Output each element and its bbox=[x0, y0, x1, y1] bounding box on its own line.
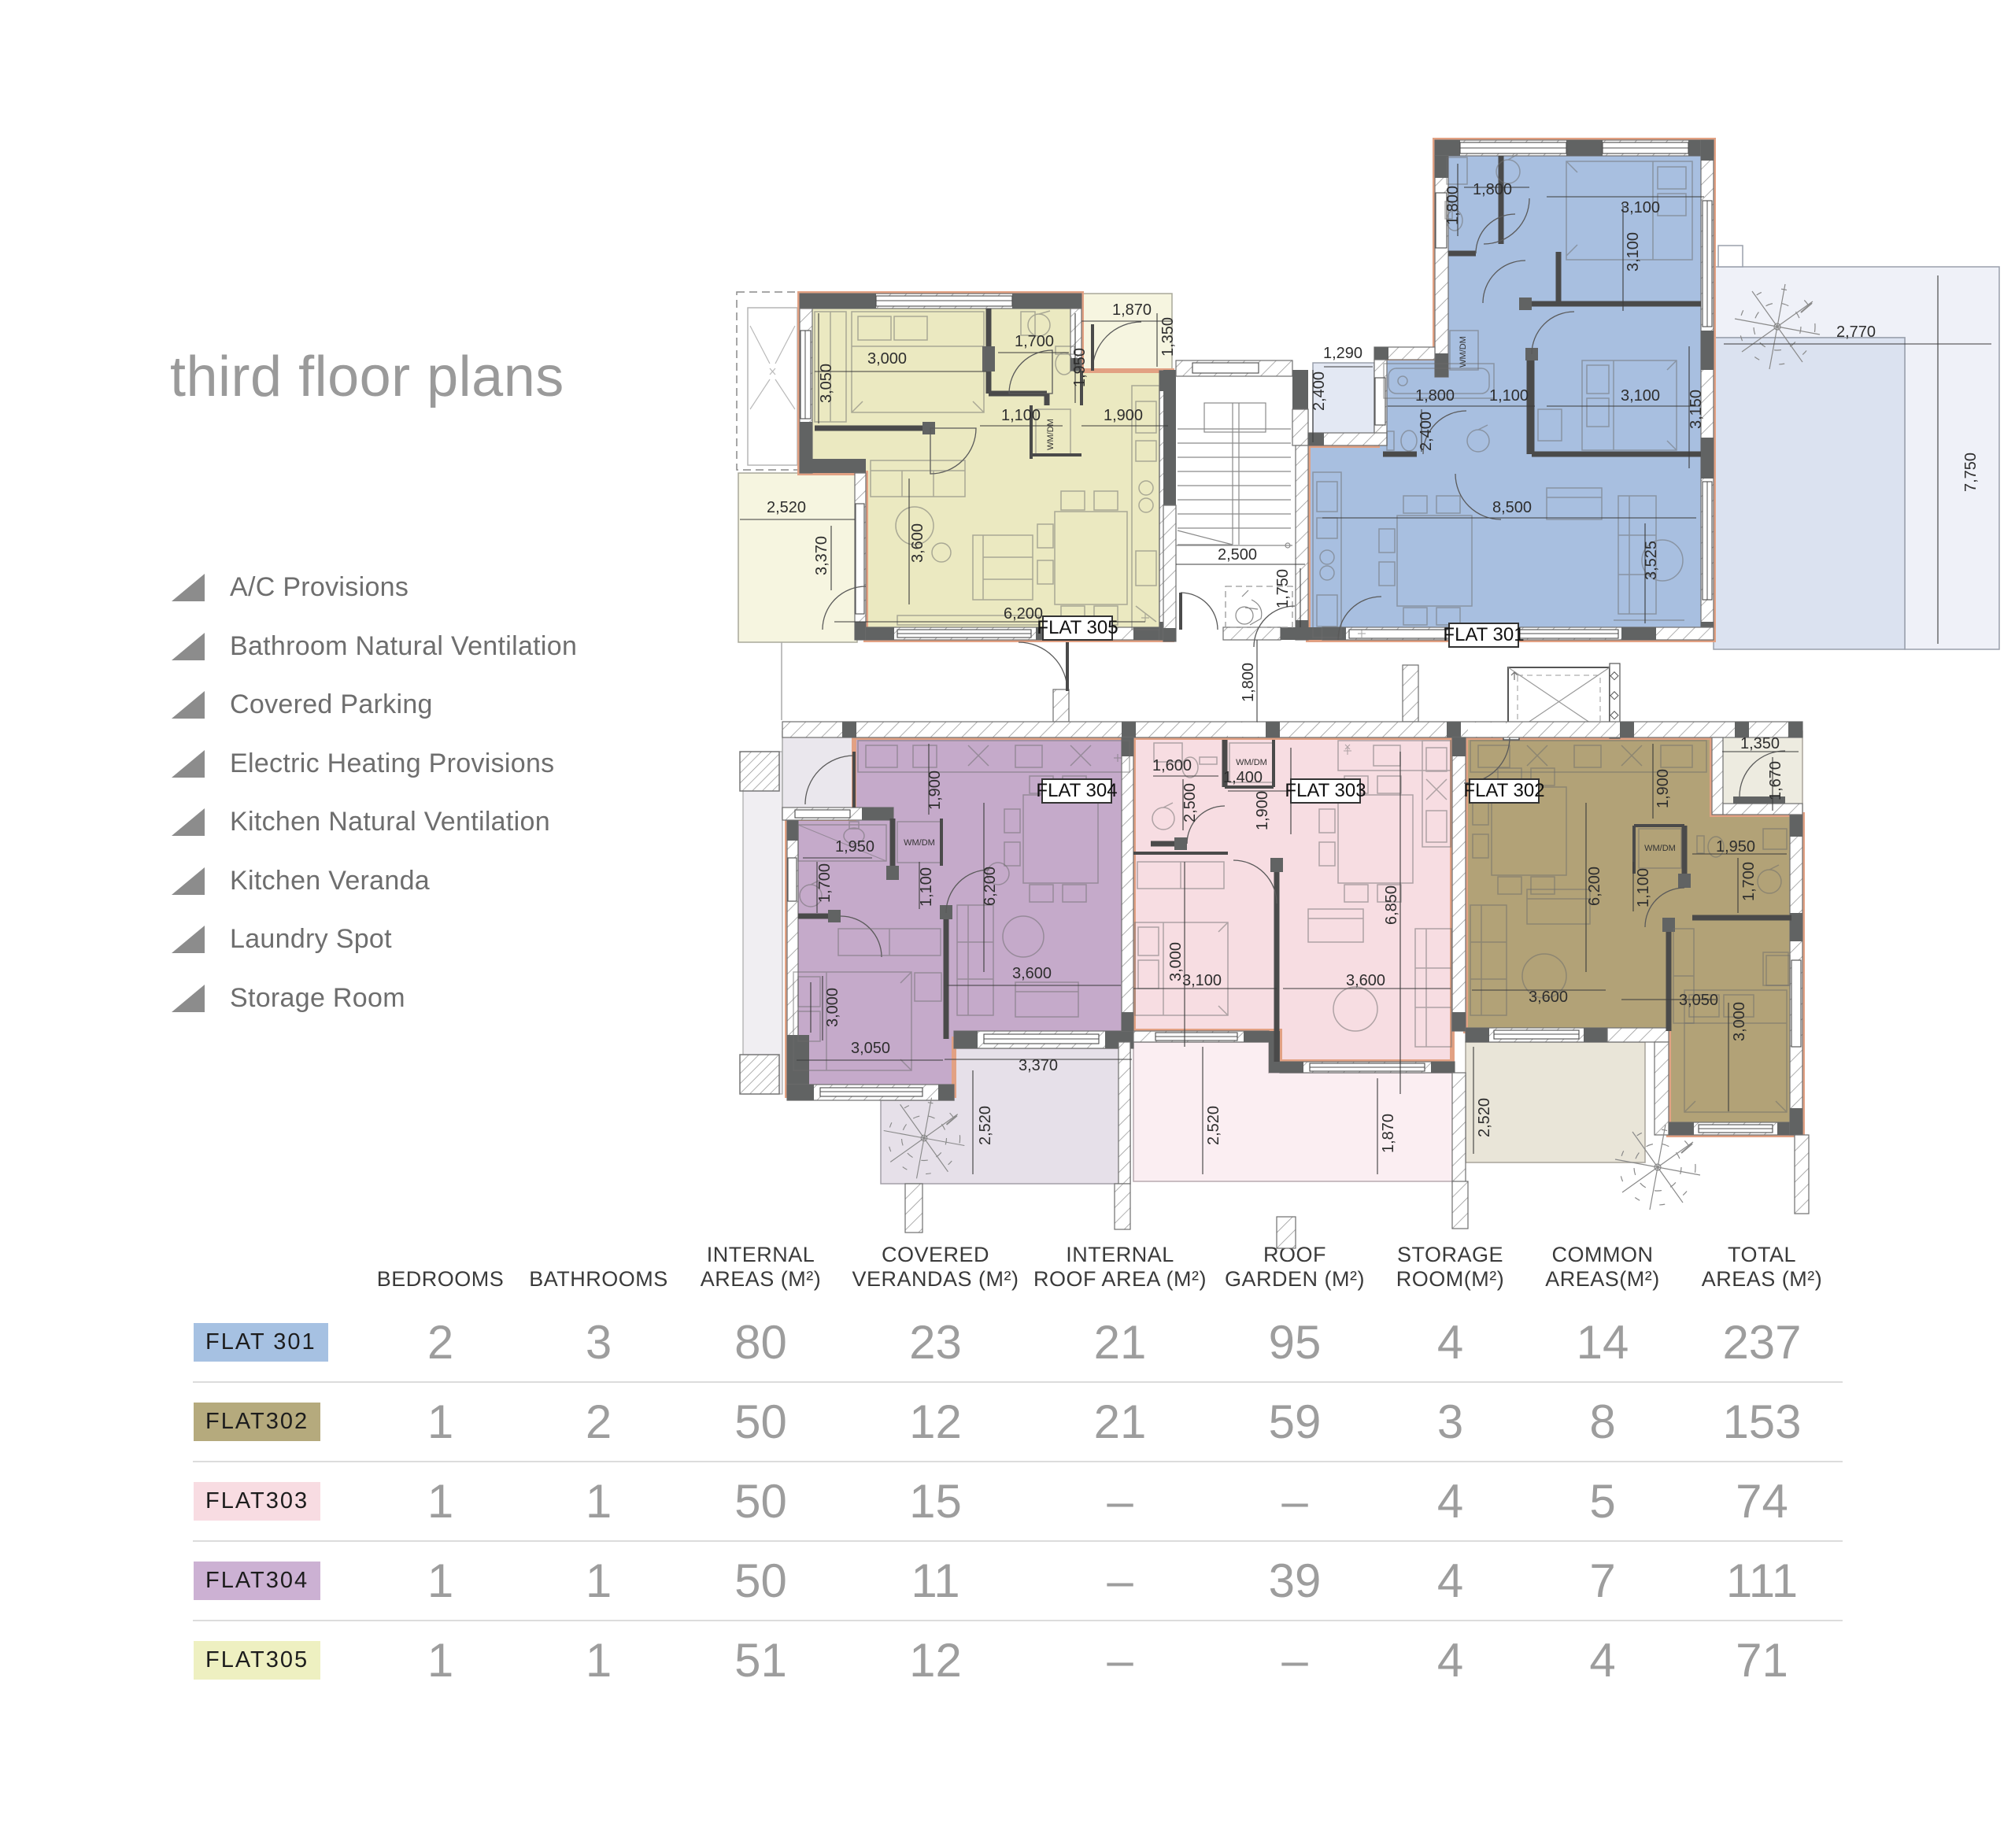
svg-text:1,900: 1,900 bbox=[926, 771, 944, 810]
svg-text:6,200: 6,200 bbox=[1586, 867, 1603, 906]
svg-text:1,900: 1,900 bbox=[1254, 791, 1271, 830]
svg-text:1,670: 1,670 bbox=[1767, 761, 1784, 800]
svg-text:WM/DM: WM/DM bbox=[904, 838, 935, 848]
svg-text:1,100: 1,100 bbox=[1489, 387, 1529, 405]
svg-text:1,870: 1,870 bbox=[1380, 1114, 1397, 1153]
svg-text:2,520: 2,520 bbox=[977, 1106, 994, 1145]
svg-text:3,000: 3,000 bbox=[1731, 1002, 1748, 1041]
svg-text:2,500: 2,500 bbox=[1181, 783, 1199, 822]
svg-text:FLAT 301: FLAT 301 bbox=[1443, 624, 1524, 645]
svg-text:3,100: 3,100 bbox=[1182, 972, 1222, 989]
svg-text:3,000: 3,000 bbox=[824, 988, 841, 1027]
svg-text:WM/DM: WM/DM bbox=[1644, 844, 1676, 853]
svg-text:1,100: 1,100 bbox=[1001, 407, 1041, 424]
svg-text:1,100: 1,100 bbox=[918, 867, 935, 907]
svg-text:6,200: 6,200 bbox=[982, 867, 999, 906]
svg-text:1,700: 1,700 bbox=[1015, 333, 1054, 350]
svg-text:1,290: 1,290 bbox=[1323, 345, 1362, 362]
svg-text:8,500: 8,500 bbox=[1492, 499, 1532, 516]
svg-text:3,525: 3,525 bbox=[1643, 541, 1660, 580]
svg-text:1,900: 1,900 bbox=[1104, 407, 1143, 424]
svg-text:3,600: 3,600 bbox=[1012, 965, 1052, 982]
svg-text:1,700: 1,700 bbox=[816, 863, 834, 903]
svg-text:1,900: 1,900 bbox=[1655, 769, 1672, 808]
svg-text:6,850: 6,850 bbox=[1383, 885, 1400, 925]
svg-text:WM/DM: WM/DM bbox=[1236, 758, 1267, 767]
svg-text:3,600: 3,600 bbox=[909, 523, 926, 563]
svg-text:3,100: 3,100 bbox=[1621, 199, 1660, 216]
svg-text:1,600: 1,600 bbox=[1152, 757, 1192, 774]
svg-text:FLAT 302: FLAT 302 bbox=[1463, 780, 1544, 801]
svg-text:1,400: 1,400 bbox=[1223, 769, 1263, 786]
svg-text:FLAT 305: FLAT 305 bbox=[1037, 617, 1118, 638]
svg-text:3,370: 3,370 bbox=[1019, 1057, 1058, 1074]
svg-text:2,400: 2,400 bbox=[1311, 371, 1328, 411]
svg-text:1,950: 1,950 bbox=[1716, 838, 1755, 856]
svg-text:1,700: 1,700 bbox=[1740, 862, 1758, 901]
svg-text:FLAT 303: FLAT 303 bbox=[1285, 780, 1366, 801]
svg-text:WM/DM: WM/DM bbox=[1046, 419, 1056, 450]
svg-text:WM/DM: WM/DM bbox=[1459, 336, 1468, 368]
svg-text:1,750: 1,750 bbox=[1274, 569, 1292, 608]
svg-text:1,800: 1,800 bbox=[1444, 186, 1462, 225]
svg-text:7,750: 7,750 bbox=[1962, 453, 1980, 492]
svg-text:1,950: 1,950 bbox=[835, 838, 874, 856]
svg-text:3,600: 3,600 bbox=[1529, 989, 1568, 1006]
svg-text:2,520: 2,520 bbox=[1476, 1098, 1493, 1137]
svg-text:1,870: 1,870 bbox=[1112, 301, 1152, 319]
svg-text:3,100: 3,100 bbox=[1621, 387, 1660, 405]
svg-text:1,800: 1,800 bbox=[1473, 181, 1512, 198]
svg-text:2,400: 2,400 bbox=[1418, 412, 1435, 451]
svg-text:1,950: 1,950 bbox=[1071, 348, 1089, 387]
svg-text:2,770: 2,770 bbox=[1836, 323, 1876, 341]
svg-text:2,500: 2,500 bbox=[1218, 546, 1257, 564]
svg-text:3,050: 3,050 bbox=[851, 1040, 890, 1057]
svg-text:2,520: 2,520 bbox=[1205, 1106, 1222, 1145]
svg-text:1,350: 1,350 bbox=[1740, 735, 1780, 752]
svg-text:FLAT 304: FLAT 304 bbox=[1036, 780, 1117, 801]
svg-text:3,000: 3,000 bbox=[867, 350, 907, 368]
svg-text:1,800: 1,800 bbox=[1240, 663, 1257, 702]
svg-text:2,520: 2,520 bbox=[767, 499, 806, 516]
svg-text:3,150: 3,150 bbox=[1688, 390, 1705, 429]
svg-text:3,050: 3,050 bbox=[1679, 992, 1718, 1009]
svg-text:3,600: 3,600 bbox=[1346, 972, 1385, 989]
svg-text:3,100: 3,100 bbox=[1625, 232, 1642, 272]
svg-text:1,350: 1,350 bbox=[1159, 317, 1177, 357]
svg-text:3,050: 3,050 bbox=[818, 364, 835, 403]
svg-text:1,100: 1,100 bbox=[1635, 868, 1652, 907]
svg-text:3,370: 3,370 bbox=[813, 536, 830, 575]
svg-text:1,800: 1,800 bbox=[1415, 387, 1455, 405]
